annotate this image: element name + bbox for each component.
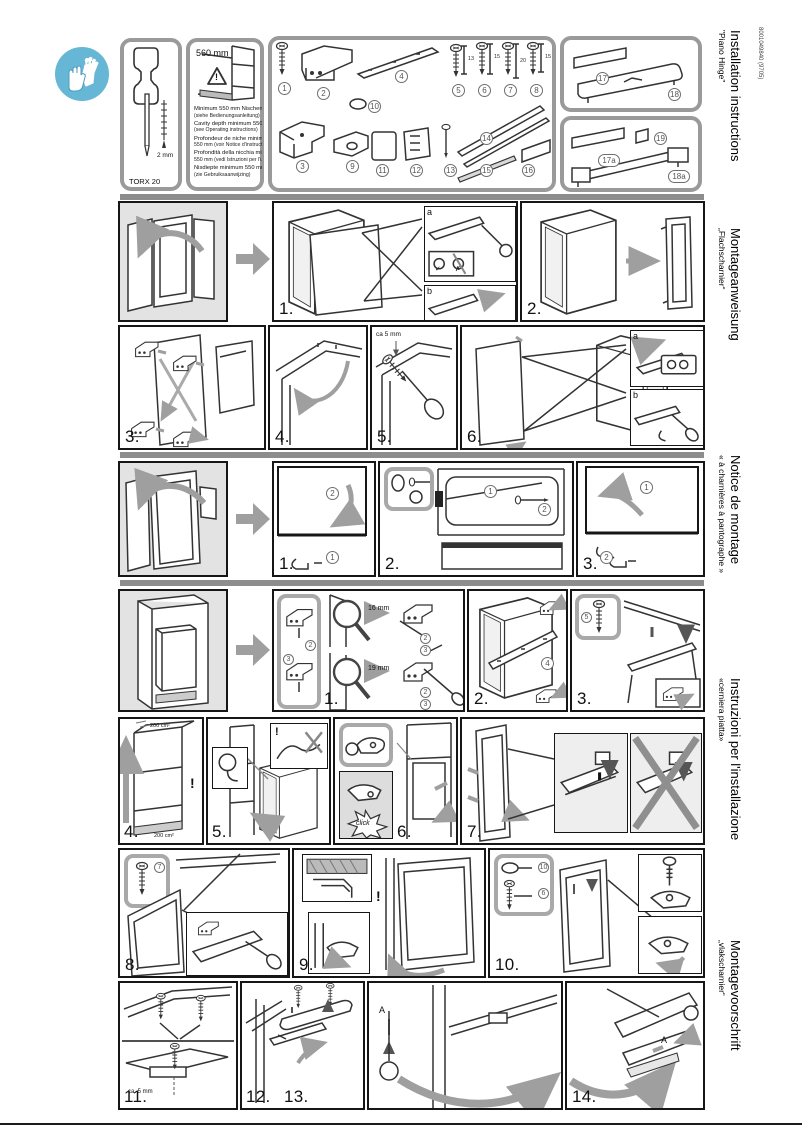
overview-door-swap-panel bbox=[118, 201, 228, 322]
step-3-drawing bbox=[120, 327, 264, 448]
step-6-inset-b: b bbox=[630, 389, 704, 446]
step-11g-panel: ca. 5 mm 11. bbox=[118, 981, 238, 1110]
step-14g-number: 14. bbox=[572, 1087, 597, 1107]
part-13-callout: 13 bbox=[444, 164, 457, 177]
niche-notes: Minimum 550 mm Nischentiefe (siehe Bedie… bbox=[194, 106, 262, 180]
step-3d-number: 3. bbox=[577, 689, 592, 709]
step-10f-panel: 10 6 10. bbox=[488, 848, 705, 978]
step-3c-panel: 1 2 3. bbox=[576, 461, 705, 577]
title-german-sub: „Flachscharnier“ bbox=[716, 228, 728, 341]
niche-note-de: Minimum 550 mm Nischentiefe bbox=[194, 106, 262, 113]
step-12g-number: 12. bbox=[246, 1087, 271, 1107]
step-3c-callout-1: 1 bbox=[640, 481, 653, 494]
step-6-inset-a: a bbox=[630, 330, 704, 387]
step-4-number: 4. bbox=[275, 427, 290, 447]
step-5e-plug-inset bbox=[212, 747, 248, 789]
step-1a-number: 1. bbox=[279, 299, 294, 319]
overview-niche-panel bbox=[118, 589, 228, 712]
part-5-callout: 5 bbox=[452, 84, 465, 97]
screw5-length: 13 bbox=[468, 56, 474, 62]
step-6e-drawing bbox=[335, 719, 456, 843]
torx-screwdriver-drawing bbox=[124, 42, 178, 187]
step-6-number: 6. bbox=[467, 427, 482, 447]
step-2a-drawing bbox=[522, 203, 703, 320]
step-2c-callout-2: 2 bbox=[538, 503, 551, 516]
niche-note-it-sub: 550 mm (vedi Istruzioni per l'uso) bbox=[194, 157, 262, 163]
step-5e-panel: ! 5. bbox=[206, 717, 331, 845]
step-3c-number: 3. bbox=[583, 554, 598, 574]
vent-area-bottom-label: 200 cm² bbox=[154, 833, 174, 839]
step-5e-warning-mark: ! bbox=[275, 726, 279, 738]
title-dutch: Montagevoorschrift „vlakscharnier“ bbox=[716, 940, 743, 1051]
part-12-callout: 12 bbox=[410, 164, 423, 177]
step-1a-inset-b: b bbox=[424, 285, 516, 321]
step-5e-number: 5. bbox=[212, 822, 227, 842]
part-17-callout: 17 bbox=[596, 72, 609, 85]
protective-gloves-icon bbox=[55, 47, 109, 101]
step-9f-number: 9. bbox=[299, 955, 314, 975]
step-4e-panel: 200 cm² ! 200 cm² 4. bbox=[118, 717, 204, 845]
step-5-panel: ca 5 mm 5. bbox=[370, 325, 458, 450]
niche-note-fr-sub: 550 mm (voir Notice d'instructions) bbox=[194, 142, 262, 148]
gloves-badge bbox=[55, 47, 109, 101]
step-3c-callout-2: 2 bbox=[600, 551, 613, 564]
step-10f-turn-inset bbox=[638, 916, 702, 974]
step-1c-callout-1: 1 bbox=[326, 551, 339, 564]
step-1d-number: 1. bbox=[324, 689, 339, 709]
tool-box: 2 mm TORX 20 bbox=[120, 38, 182, 191]
part-7-callout: 7 bbox=[504, 84, 517, 97]
step-9f-panel: ! 9. bbox=[292, 848, 486, 978]
step-2d-panel: 4 2. bbox=[467, 589, 568, 712]
step-1d-callout-2-bot: 2 bbox=[420, 687, 431, 698]
inset-a-check: ✓ bbox=[435, 265, 441, 273]
parts-box-17a-18a: 17a 19 18a bbox=[560, 116, 702, 192]
part-19-callout: 19 bbox=[654, 132, 667, 145]
step-6-inset-a-label: a bbox=[633, 331, 638, 341]
parts-box: 1 2 4 13 15 20 15 5 6 7 8 10 3 9 11 12 1… bbox=[268, 36, 556, 192]
step-1c-panel: 2 1 1. bbox=[272, 461, 376, 577]
pantograph-overview-drawing bbox=[120, 463, 226, 575]
step-6e-number: 6. bbox=[397, 822, 412, 842]
step-4-panel: 4. bbox=[268, 325, 368, 450]
step-13g-number: 13. bbox=[284, 1087, 309, 1107]
step-3-number: 3. bbox=[125, 427, 140, 447]
part-10-callout: 10 bbox=[368, 100, 381, 113]
step-1a-inset-a: a ✓ ✗ bbox=[424, 206, 516, 282]
title-german-main: Montageanweisung bbox=[728, 228, 743, 341]
part-9-callout: 9 bbox=[346, 160, 359, 173]
cord-warning-drawing bbox=[271, 724, 327, 768]
step-2c-callout-1: 1 bbox=[484, 485, 497, 498]
step-2d-callout-4: 4 bbox=[541, 657, 554, 670]
title-italian-main: Instruzioni per l'installazione bbox=[728, 678, 743, 840]
plug-pin-drawing bbox=[388, 471, 430, 507]
title-dutch-main: Montagevoorschrift bbox=[728, 940, 743, 1051]
mag-16mm-label: 16 mm bbox=[368, 605, 389, 612]
niche-box: 560 mm ! Minimum 550 mm Nischentiefe (si… bbox=[186, 38, 264, 191]
niche-note-de-sub: (siehe Bedienungsanleitung) bbox=[194, 113, 262, 119]
title-english-main: Installation instructions bbox=[728, 30, 743, 162]
step-6e-panel: click 6. bbox=[333, 717, 458, 845]
step-8f-panel: 7 8. bbox=[118, 848, 290, 978]
step-5-note: ca 5 mm bbox=[376, 331, 401, 338]
mark-a-label: A bbox=[379, 1005, 385, 1015]
step-7e-inset-correct bbox=[554, 733, 628, 833]
inset-a-label: a bbox=[427, 207, 432, 217]
screw7-length: 20 bbox=[520, 58, 526, 64]
title-dutch-sub: „vlakscharnier“ bbox=[716, 940, 728, 1051]
step-3d-panel: 5 3. bbox=[570, 589, 705, 712]
inset-b-label: b bbox=[427, 286, 432, 296]
step-8f-number: 8. bbox=[125, 955, 140, 975]
part-3-callout: 3 bbox=[296, 160, 309, 173]
step-2d-number: 2. bbox=[474, 689, 489, 709]
section-separator-1 bbox=[120, 194, 704, 200]
niche-note-nl: Nisdiepte minimum 550 mm bbox=[194, 165, 262, 172]
step-2c-inset bbox=[384, 467, 434, 511]
step-1d-panel: 2 3 16 mm 19 mm 2 3 2 3 1. bbox=[272, 589, 465, 712]
part-8-callout: 8 bbox=[530, 84, 543, 97]
title-english-sub: "Piano Hinge" bbox=[716, 30, 728, 162]
hinge-correct-drawing bbox=[555, 734, 627, 832]
document-number: 8001049840 (9705) bbox=[757, 27, 763, 79]
step-14g-panel: A 14. bbox=[565, 981, 705, 1110]
section-separator-2 bbox=[120, 452, 704, 458]
arm-detail-drawing bbox=[187, 913, 287, 975]
step-1d-callout-2-top: 2 bbox=[420, 633, 431, 644]
step-4e-warning: ! bbox=[190, 775, 195, 791]
bracket-hook-drawing bbox=[309, 913, 369, 973]
title-german: Montageanweisung „Flachscharnier“ bbox=[716, 228, 743, 341]
step-10f-number: 10. bbox=[495, 955, 520, 975]
tool-label: TORX 20 bbox=[129, 177, 160, 186]
niche-overview-drawing bbox=[120, 591, 226, 710]
part-17a-callout: 17a bbox=[598, 154, 620, 167]
niche-note-nl-sub: (zie Gebruiksaanwijzing) bbox=[194, 172, 262, 178]
step-7e-inset-wrong bbox=[630, 733, 702, 833]
step-1d-callout-3-bot: 3 bbox=[420, 699, 431, 710]
section-separator-3 bbox=[120, 580, 704, 586]
step-6-panel: a b 6. bbox=[460, 325, 705, 450]
step-6-inset-a-drawing bbox=[631, 331, 703, 386]
flow-arrow-3 bbox=[236, 634, 270, 666]
step-2a-panel: 2. bbox=[520, 201, 705, 322]
inset-a-cross: ✗ bbox=[455, 265, 461, 273]
title-french-sub: « à charnières à pantographe » bbox=[716, 455, 728, 573]
bottom-rule bbox=[0, 1123, 802, 1125]
niche-note-fr: Profondeur de niche minimum bbox=[194, 136, 262, 143]
step-9f-bracket-inset bbox=[308, 912, 370, 974]
title-italian-sub: «cerniera piatta» bbox=[716, 678, 728, 840]
part-15-callout: 15 bbox=[480, 164, 493, 177]
step-5-number: 5. bbox=[377, 427, 392, 447]
flow-arrow-2 bbox=[236, 503, 270, 535]
door-swap-drawing bbox=[120, 203, 226, 320]
mag-19mm-label: 19 mm bbox=[368, 665, 389, 672]
part-6-callout: 6 bbox=[478, 84, 491, 97]
step-5e-warning-inset: ! bbox=[270, 723, 328, 769]
niche-note-it: Profondità della nicchia minimo bbox=[194, 150, 262, 157]
part-11-callout: 11 bbox=[376, 164, 389, 177]
hinge-slide-drawing bbox=[425, 286, 515, 320]
step-11g-number: 11. bbox=[124, 1087, 147, 1107]
step-1d-callout-3-top: 3 bbox=[420, 645, 431, 656]
step-7e-panel: 7. bbox=[460, 717, 705, 845]
part-18a-callout: 18a bbox=[668, 170, 690, 183]
part-16-callout: 16 bbox=[522, 164, 535, 177]
step-2a-number: 2. bbox=[527, 299, 542, 319]
title-english: Installation instructions "Piano Hinge" bbox=[716, 30, 743, 162]
step-6-inset-b-drawing bbox=[631, 390, 703, 445]
warning-exclamation: ! bbox=[215, 72, 218, 82]
screw8-length: 15 bbox=[545, 54, 551, 60]
title-french: Notice de montage « à charnières à panto… bbox=[716, 455, 743, 573]
step-4e-number: 4. bbox=[124, 822, 139, 842]
step-10f-pin-inset bbox=[638, 854, 702, 912]
pin-drop-drawing bbox=[639, 855, 701, 911]
step-1a-panel: a ✓ ✗ b 1. bbox=[272, 201, 518, 322]
niche-note-en-sub: (see Operating instructions) bbox=[194, 127, 262, 133]
title-italian: Instruzioni per l'installazione «cernier… bbox=[716, 678, 743, 840]
step-7e-number: 7. bbox=[467, 822, 482, 842]
screw6-length: 15 bbox=[494, 54, 500, 60]
parts-box-17-18: 17 18 bbox=[560, 36, 702, 112]
niche-dimension: 560 mm bbox=[196, 48, 229, 58]
step-3-panel: 3. bbox=[118, 325, 266, 450]
bit-size-label: 2 mm bbox=[157, 152, 173, 159]
part-2-callout: 2 bbox=[317, 87, 330, 100]
step-12-13g-panel: 12. 13. bbox=[240, 981, 365, 1110]
step-2c-number: 2. bbox=[385, 554, 400, 574]
step-1c-callout-2: 2 bbox=[326, 487, 339, 500]
step-2c-panel: 1 2 2. bbox=[378, 461, 574, 577]
manual-page: 2 mm TORX 20 560 mm ! Minimum 550 mm Nis… bbox=[0, 0, 802, 1134]
roller-cord-drawing bbox=[369, 983, 561, 1108]
overview-pantograph-panel bbox=[118, 461, 228, 577]
plug-drawing bbox=[213, 748, 247, 788]
niche-note-en: Cavity depth minimum 550 mm bbox=[194, 121, 262, 128]
part-4-callout: 4 bbox=[395, 70, 408, 83]
step-1c-number: 1. bbox=[279, 554, 294, 574]
step-8f-arm-inset bbox=[186, 912, 288, 976]
part-1-callout: 1 bbox=[278, 82, 291, 95]
vent-area-top-label: 200 cm² bbox=[150, 723, 170, 729]
part-18-callout: 18 bbox=[668, 88, 681, 101]
step-9f-warning: ! bbox=[376, 888, 381, 904]
bracket-turn-drawing bbox=[639, 917, 701, 973]
step-6-inset-b-label: b bbox=[633, 390, 638, 400]
hinge-wrong-drawing bbox=[631, 734, 701, 832]
flow-arrow-1 bbox=[236, 243, 270, 275]
mark-a14-label: A bbox=[661, 1035, 667, 1045]
step-a-panel: A bbox=[367, 981, 563, 1110]
part-14-callout: 14 bbox=[480, 132, 493, 145]
title-french-main: Notice de montage bbox=[728, 455, 743, 573]
